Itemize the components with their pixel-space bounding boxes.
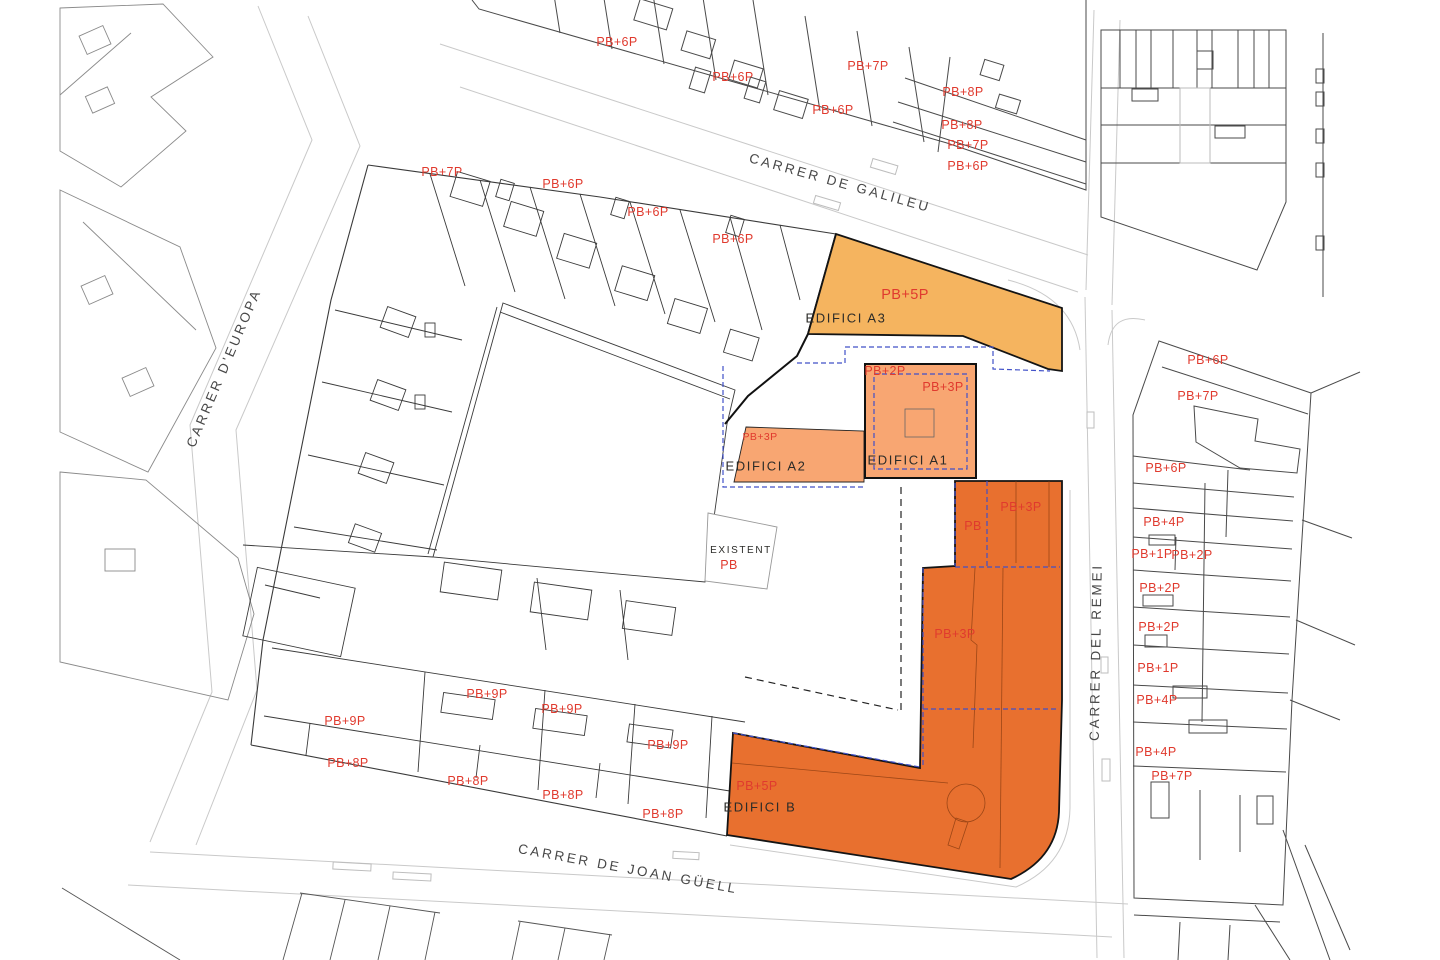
- existent-plot-shape: [705, 513, 777, 589]
- paper-background: [0, 0, 1440, 960]
- plan-drawing: [0, 0, 1440, 960]
- edifici-a2-shape: [734, 427, 864, 482]
- edifici-a1-shape: [865, 364, 976, 478]
- site-plan-map: PB+6PPB+7PPB+6PPB+8PPB+6PPB+8PPB+7PPB+6P…: [0, 0, 1440, 960]
